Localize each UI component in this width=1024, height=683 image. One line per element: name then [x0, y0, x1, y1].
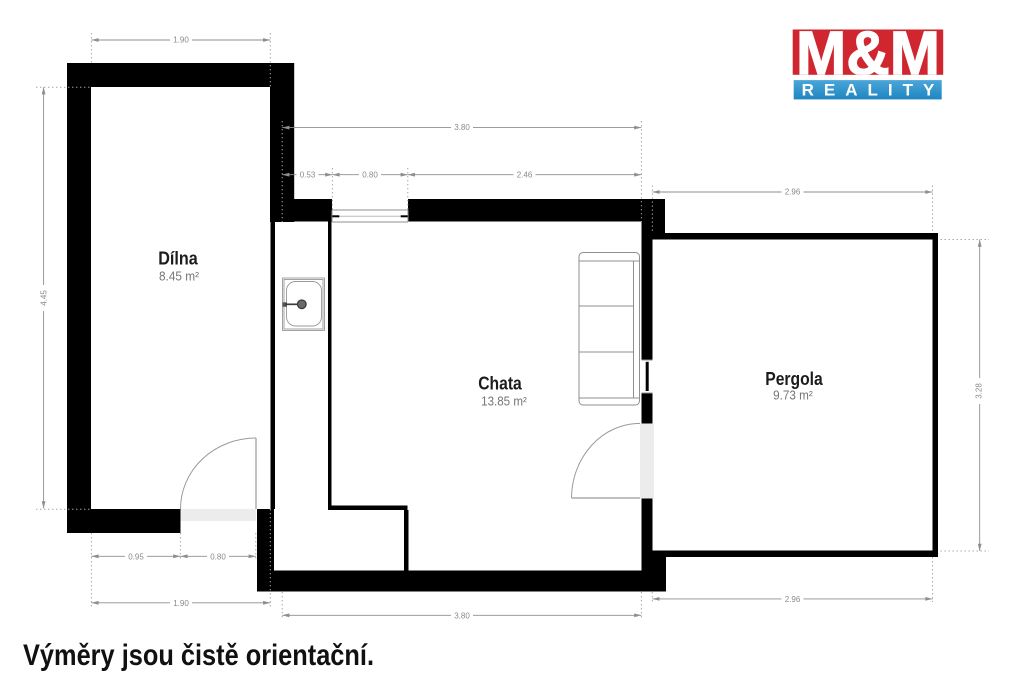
svg-text:Dílna: Dílna — [158, 249, 198, 269]
svg-text:1.90: 1.90 — [173, 36, 189, 45]
svg-text:0.80: 0.80 — [210, 552, 226, 561]
svg-text:Výměry jsou čistě orientační.: Výměry jsou čistě orientační. — [23, 639, 374, 672]
svg-text:2.96: 2.96 — [785, 188, 801, 197]
svg-text:9.73 m²: 9.73 m² — [773, 388, 813, 403]
svg-text:3.80: 3.80 — [454, 123, 470, 132]
svg-text:3.28: 3.28 — [974, 383, 983, 399]
svg-text:3.80: 3.80 — [454, 611, 470, 620]
svg-text:1.90: 1.90 — [173, 599, 189, 608]
svg-text:4.45: 4.45 — [40, 290, 49, 306]
svg-text:8.45 m²: 8.45 m² — [159, 269, 200, 284]
svg-text:0.80: 0.80 — [362, 170, 378, 179]
svg-text:Pergola: Pergola — [765, 369, 823, 389]
svg-text:13.85 m²: 13.85 m² — [481, 394, 527, 409]
svg-text:0.95: 0.95 — [128, 552, 144, 561]
svg-text:Chata: Chata — [478, 374, 522, 394]
svg-text:2.46: 2.46 — [517, 170, 533, 179]
svg-text:0.53: 0.53 — [300, 170, 316, 179]
svg-text:REALITY: REALITY — [802, 81, 945, 100]
svg-text:2.96: 2.96 — [785, 595, 801, 604]
